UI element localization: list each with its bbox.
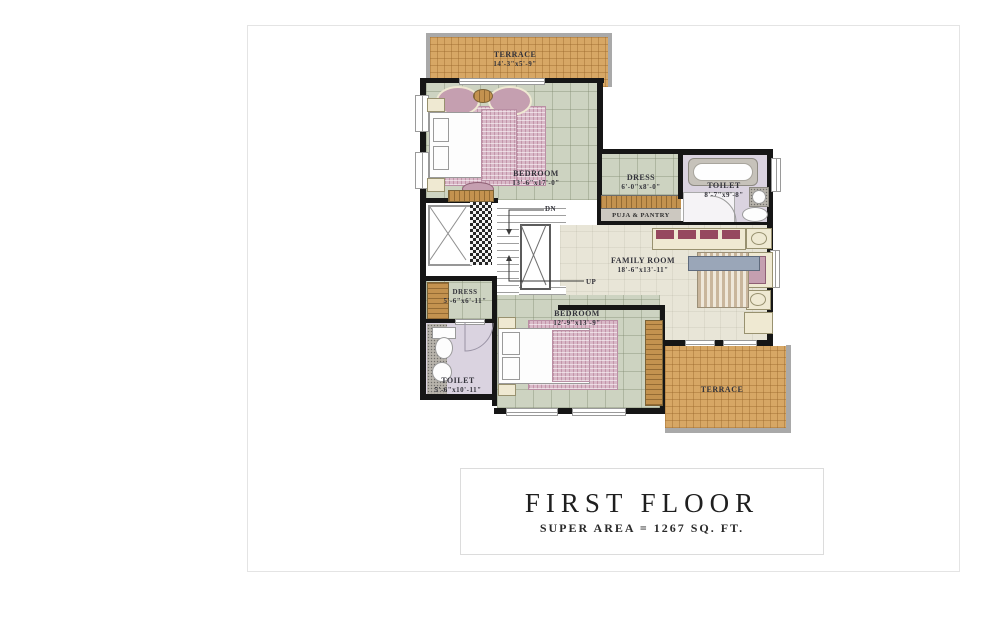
- toilet2-label: TOILET 5'-6"x10'-11": [426, 376, 490, 395]
- wall: [678, 149, 773, 155]
- side-table: [427, 178, 445, 192]
- window: [771, 158, 781, 192]
- pantry-counter: [601, 195, 681, 209]
- side-table: [427, 98, 445, 112]
- side-table: [498, 317, 516, 329]
- wall: [678, 149, 683, 199]
- page-title: FIRST FLOOR: [525, 488, 759, 519]
- puja-pantry-label: PUJA & PANTRY: [612, 212, 670, 219]
- toilet1-label: TOILET 8'-7"x9'-8": [684, 181, 764, 200]
- window: [459, 78, 545, 85]
- bedroom2-label: BEDROOM 12'-9"x13'-9": [517, 309, 637, 328]
- wc: [742, 207, 768, 222]
- sofa-cushion: [722, 230, 740, 239]
- wardrobe: [448, 190, 494, 202]
- terrace-edge: [786, 345, 791, 433]
- wc: [435, 337, 453, 359]
- stairs-up-label: UP: [586, 278, 596, 286]
- bedroom1-label: BEDROOM 13'-6"x17'-0": [486, 169, 586, 188]
- pillow: [502, 357, 520, 380]
- wall: [597, 149, 685, 154]
- shaft-wall: [470, 202, 492, 265]
- stair-shaft: [520, 224, 551, 290]
- wall: [420, 276, 497, 281]
- pillow: [502, 332, 520, 355]
- sofa-cushion: [700, 230, 718, 239]
- wall: [597, 78, 603, 154]
- side-table: [498, 384, 516, 396]
- title-block: FIRST FLOOR SUPER AREA = 1267 SQ. FT.: [460, 468, 824, 555]
- window: [572, 408, 626, 416]
- terrace-top-label: TERRACE 14'-3"x5'-9": [455, 50, 575, 69]
- page-subtitle: SUPER AREA = 1267 SQ. FT.: [540, 521, 744, 536]
- sofa-cushion: [678, 230, 696, 239]
- stairs: [519, 203, 566, 223]
- elevator-shaft: [428, 205, 472, 266]
- window: [506, 408, 558, 416]
- dress1-label: DRESS 6'-0"x8'-0": [601, 173, 681, 192]
- console: [744, 312, 773, 334]
- dress2-label: DRESS 5'-6"x6'-11": [432, 288, 498, 306]
- floor-plan-page: FIRST FLOOR SUPER AREA = 1267 SQ. FT. TE…: [0, 0, 1000, 631]
- terrace-edge: [665, 428, 791, 433]
- sofa-cushion: [656, 230, 674, 239]
- family-room-label: FAMILY ROOM 18'-6"x13'-11": [583, 256, 703, 275]
- blanket: [552, 330, 590, 382]
- pillow: [433, 118, 449, 142]
- table-top: [751, 232, 767, 245]
- pillow: [433, 146, 449, 170]
- stairs: [497, 203, 519, 293]
- door-opening: [455, 319, 485, 325]
- table-top: [750, 293, 766, 306]
- round-table: [473, 89, 493, 103]
- puja-pantry-band: PUJA & PANTRY: [601, 208, 681, 222]
- terrace-bottom-label: TERRACE: [682, 385, 762, 395]
- wardrobe: [645, 320, 663, 406]
- stairs-dn-label: DN: [545, 205, 556, 213]
